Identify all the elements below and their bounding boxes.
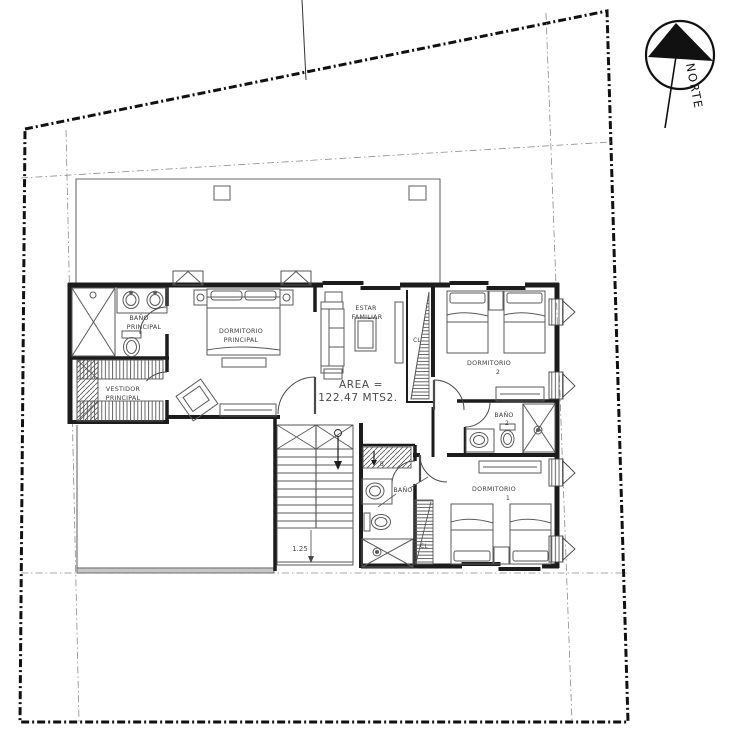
terrace-column [409, 186, 426, 200]
floor-plan-sheet: NORTE BAÑO PRINCIPAL VESTIDOR PRINCIPAL … [0, 0, 736, 730]
label-dormitorio-2: DORMITORIO [467, 360, 511, 367]
sliding-window [323, 282, 363, 285]
sofa-cushion [329, 309, 344, 328]
svg-text:2: 2 [505, 420, 509, 427]
nightstand [280, 290, 293, 305]
sofa-cushion [329, 328, 344, 347]
toilet-tank [364, 513, 370, 531]
bed [510, 504, 551, 564]
svg-text:2: 2 [496, 369, 500, 376]
sofa-cushion [329, 347, 344, 366]
pillow [245, 291, 276, 300]
stairs [277, 425, 353, 565]
svg-text:FAMILIAR: FAMILIAR [352, 314, 383, 321]
casement-windows [549, 299, 575, 562]
label-dormitorio-principal: DORMITORIO [219, 328, 263, 335]
sofa-armrest [321, 302, 343, 309]
svg-text:PRINCIPAL: PRINCIPAL [224, 337, 259, 344]
bench [222, 358, 266, 367]
bed [451, 504, 493, 564]
pillow [513, 551, 548, 561]
lower-terrace [77, 425, 274, 573]
label-stair-dimension: 1.25 [292, 545, 308, 553]
label-area: AREA = [339, 379, 383, 391]
side-table [324, 369, 342, 379]
sink [470, 433, 488, 448]
dormitorio-1-furniture [415, 461, 551, 564]
label-bano-principal: BAÑO [129, 313, 148, 322]
nightstand [194, 290, 207, 305]
bed [207, 297, 280, 355]
nightstand [494, 547, 509, 564]
label-stair-down: B [380, 462, 384, 468]
label-closet-dormitorio-1: CL [420, 544, 428, 550]
nightstand [489, 291, 503, 310]
pillow [450, 293, 485, 303]
label-dormitorio-1: DORMITORIO [472, 486, 516, 493]
armchair [176, 379, 218, 421]
pillow [507, 293, 542, 303]
sofa-back [321, 309, 329, 366]
terrace-column [214, 186, 230, 200]
shower-head-icon [90, 292, 96, 298]
sink [366, 483, 384, 499]
floor-plan-drawing: NORTE BAÑO PRINCIPAL VESTIDOR PRINCIPAL … [0, 0, 736, 730]
label-leader [378, 494, 396, 507]
pillow [454, 551, 490, 561]
side-table [325, 292, 342, 302]
svg-text:122.47 MTS2.: 122.47 MTS2. [318, 392, 397, 404]
closet-estar [411, 292, 429, 399]
toilet-tank [122, 331, 141, 338]
label-vestidor-principal: VESTIDOR [106, 386, 141, 393]
svg-text:1: 1 [506, 495, 510, 502]
toilet [372, 515, 391, 530]
boundary-survey-stub [302, 0, 306, 80]
upper-terrace [76, 179, 440, 285]
label-bano-servicio: BAÑO [393, 485, 412, 494]
label-estar-familiar: ESTAR [355, 305, 377, 312]
stair-direction-arrow-icon [334, 461, 342, 470]
headboard [207, 289, 280, 297]
label-closet-estar: CL [413, 338, 421, 344]
sliding-window [450, 282, 488, 285]
label-bano-2: BAÑO [494, 410, 513, 419]
svg-text:PRINCIPAL: PRINCIPAL [127, 324, 162, 331]
bano-principal-fixtures [72, 288, 167, 357]
pillow [211, 291, 242, 300]
under-stair-closet [363, 447, 411, 468]
dormitorio-principal-furniture [176, 289, 293, 421]
closet-dormitorio-1 [415, 500, 433, 564]
svg-text:PRINCIPAL: PRINCIPAL [106, 395, 141, 402]
north-label: NORTE [683, 62, 706, 110]
dormitorio-2-furniture [447, 291, 545, 401]
console-shelf [395, 302, 403, 363]
north-compass: NORTE [646, 21, 714, 128]
